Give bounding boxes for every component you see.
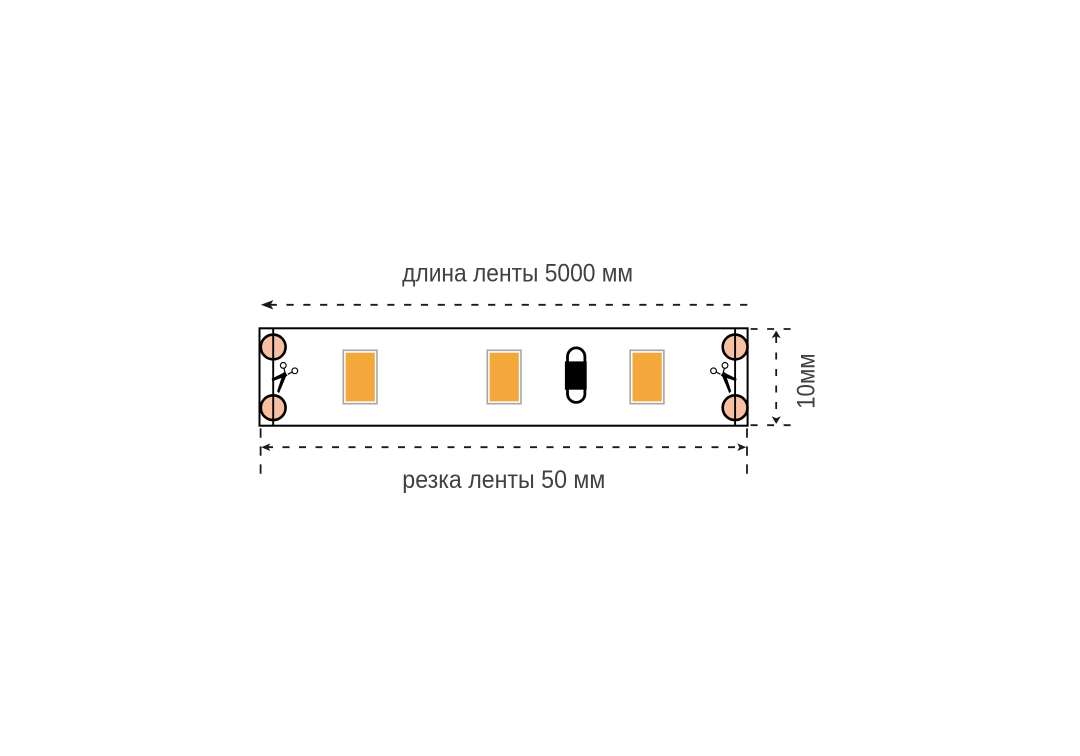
- svg-text:10мм: 10мм: [793, 353, 821, 409]
- svg-text:длина ленты 5000 мм: длина ленты 5000 мм: [402, 259, 633, 287]
- svg-text:резка ленты 50 мм: резка ленты 50 мм: [402, 466, 605, 494]
